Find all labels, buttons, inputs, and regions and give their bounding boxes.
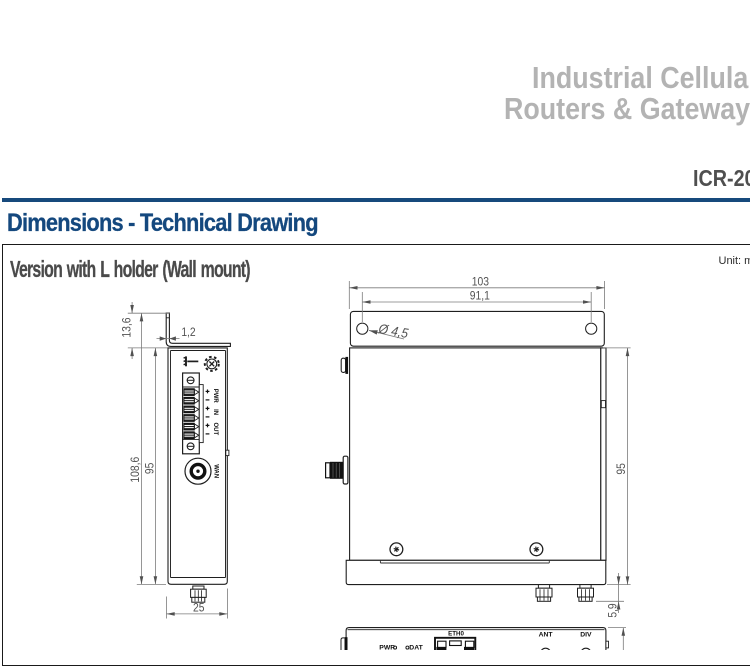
svg-text:WAN: WAN	[213, 464, 219, 478]
svg-text:95: 95	[144, 463, 157, 474]
svg-text:IN: IN	[212, 409, 218, 415]
svg-text:103: 103	[472, 276, 489, 289]
svg-text:1,2: 1,2	[181, 326, 195, 339]
svg-text:ETH0: ETH0	[448, 631, 464, 638]
svg-text:91,1: 91,1	[470, 290, 490, 303]
svg-text:PWR: PWR	[379, 645, 395, 650]
svg-text:DAT: DAT	[409, 645, 423, 650]
svg-text:PWR: PWR	[212, 389, 218, 404]
svg-text:95: 95	[615, 463, 628, 474]
svg-text:OUT: OUT	[212, 422, 218, 435]
svg-text:ANT: ANT	[539, 632, 554, 639]
svg-text:25: 25	[193, 602, 204, 615]
svg-text:DIV: DIV	[580, 632, 592, 639]
svg-text:13,6: 13,6	[121, 318, 134, 338]
svg-text:5,9: 5,9	[607, 603, 620, 617]
svg-text:108,6: 108,6	[129, 457, 142, 483]
